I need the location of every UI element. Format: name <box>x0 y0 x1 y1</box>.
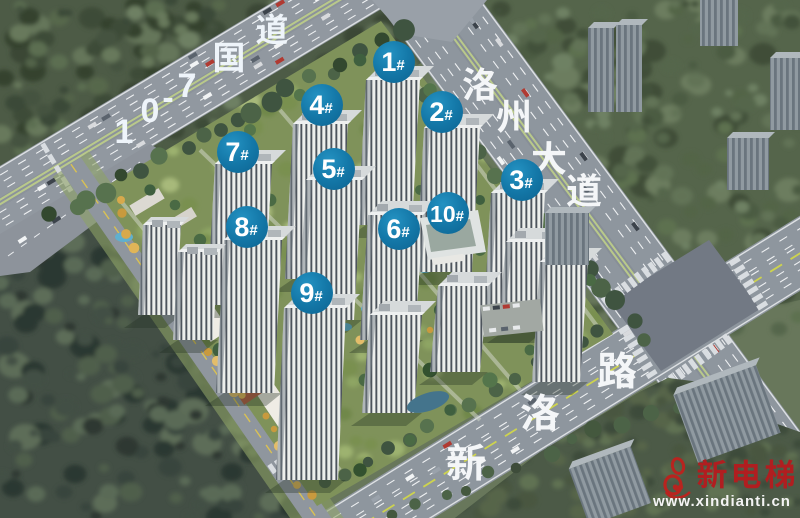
svg-text:-: - <box>162 79 173 117</box>
svg-text:0: 0 <box>141 92 160 130</box>
svg-text:1: 1 <box>115 113 134 151</box>
svg-text:www.xindianti.cn: www.xindianti.cn <box>652 493 791 510</box>
svg-text:7: 7 <box>178 67 197 105</box>
